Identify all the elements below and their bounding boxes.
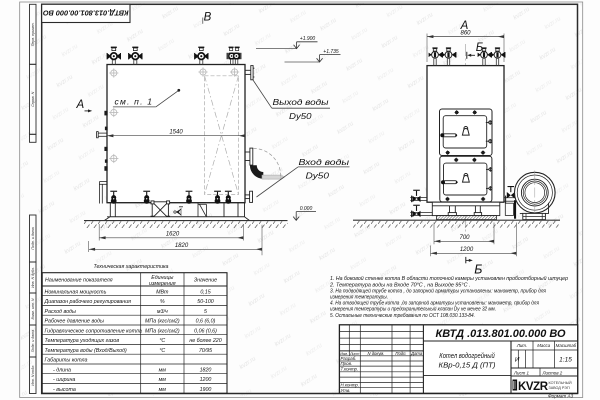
svg-text:Расход воды: Расход воды [45, 309, 76, 315]
svg-text:м3/ч: м3/ч [157, 309, 168, 315]
svg-text:Температура уходящих газов: Температура уходящих газов [45, 338, 120, 344]
svg-text:измерения: измерения [149, 281, 176, 287]
svg-text:МПа (кгс/см2): МПа (кгс/см2) [145, 319, 180, 325]
svg-text:+1.900: +1.900 [300, 36, 316, 42]
svg-text:N докум.: N докум. [368, 351, 385, 356]
svg-text:%: % [160, 299, 165, 305]
svg-text:Техническая характеристика: Техническая характеристика [94, 264, 170, 270]
svg-text:Инв. N дубл.: Инв. N дубл. [31, 267, 35, 288]
svg-text:измерения температуры.: измерения температуры. [330, 295, 388, 301]
svg-text:KVZR: KVZR [518, 381, 549, 393]
svg-text:- высота: - высота [53, 387, 76, 393]
svg-text:Лит.: Лит. [516, 343, 527, 348]
svg-text:0,15: 0,15 [200, 289, 210, 295]
svg-text:измерения температуры и пре: измерения температуры и предохранительны… [330, 306, 496, 313]
svg-text:КОТЕЛЬНЫЙ: КОТЕЛЬНЫЙ [549, 381, 572, 385]
svg-text:Подп. и дата: Подп. и дата [31, 227, 35, 250]
svg-text:1200: 1200 [460, 247, 474, 253]
svg-text:3. На подводящей трубе кот: 3. На подводящей трубе котла , до запорн… [330, 288, 546, 295]
svg-text:не более 220: не более 220 [189, 338, 221, 344]
svg-text:Дата: Дата [410, 351, 423, 356]
svg-text:мм: мм [159, 377, 167, 383]
svg-text:Температура воды (Вход/Выход): Температура воды (Вход/Выход) [45, 348, 127, 354]
svg-text:1820: 1820 [200, 367, 212, 373]
svg-text:Подп.: Подп. [395, 351, 406, 356]
svg-text:1200: 1200 [200, 377, 212, 383]
svg-text:мм: мм [159, 387, 167, 393]
svg-text:50-100: 50-100 [197, 299, 214, 305]
svg-text:В: В [204, 12, 212, 24]
svg-text:0,6 (6,0): 0,6 (6,0) [196, 319, 216, 325]
svg-text:1. На боковой стенке котла: 1. На боковой стенке котла В области топ… [330, 275, 568, 282]
svg-text:КВр-0,15 Д (ПТ): КВр-0,15 Д (ПТ) [439, 362, 496, 369]
svg-text:Инв. N подл.: Инв. N подл. [31, 365, 35, 386]
svg-text:МВт: МВт [156, 289, 169, 295]
svg-text:Гидравлическое сопротивление к: Гидравлическое сопротивление котла [45, 328, 142, 334]
svg-text:Котел водогрейный: Котел водогрейный [439, 352, 495, 360]
svg-text:Выход воды: Выход воды [273, 97, 330, 107]
svg-text:Утв.: Утв. [341, 388, 351, 393]
svg-text:Взам. инв. N: Взам. инв. N [31, 298, 35, 319]
svg-text:Габариты котла: Габариты котла [45, 358, 88, 364]
svg-text:Наименование показателя: Наименование показателя [45, 278, 113, 284]
svg-text:1540: 1540 [169, 129, 183, 135]
svg-text:см. п. 1: см. п. 1 [115, 96, 153, 106]
svg-text:70/95: 70/95 [199, 348, 212, 354]
svg-text:Т.контр.: Т.контр. [341, 367, 359, 372]
svg-text:Диапазон рабочего регулировани: Диапазон рабочего регулирования [44, 299, 132, 305]
svg-text:Б: Б [474, 263, 482, 277]
svg-text:2. Температура воды на Вхо: 2. Температура воды на Входе 70°С , на В… [329, 282, 471, 288]
svg-text:- длина: - длина [53, 367, 71, 373]
svg-text:ЗАВОД РЭП: ЗАВОД РЭП [549, 386, 570, 390]
svg-text:Формат А3: Формат А3 [548, 394, 574, 399]
svg-text:1900: 1900 [200, 387, 212, 393]
svg-text:Значение: Значение [194, 278, 217, 284]
svg-text:5: 5 [204, 309, 207, 315]
svg-text:Масштаб: Масштаб [556, 343, 577, 348]
svg-text:0,06 (0,6): 0,06 (0,6) [194, 328, 217, 334]
svg-text:МПа (кгс/см2): МПа (кгс/см2) [145, 328, 180, 334]
svg-text:И: И [515, 357, 520, 364]
svg-text:Перв. примен.: Перв. примен. [31, 22, 35, 46]
svg-text:мм: мм [159, 367, 167, 373]
svg-text:А: А [75, 99, 84, 111]
svg-text:°С: °С [159, 348, 165, 354]
svg-text:4. На отводящей трубе котл: 4. На отводящей трубе котла ,до запорной… [330, 300, 539, 307]
svg-text:+1.735: +1.735 [323, 49, 339, 55]
svg-text:Номинальная мощность: Номинальная мощность [45, 289, 107, 295]
svg-text:1620: 1620 [166, 232, 180, 238]
svg-text:860: 860 [460, 30, 471, 36]
svg-text:Справ. N: Справ. N [31, 91, 35, 106]
svg-text:°С: °С [159, 338, 165, 344]
svg-text:Рабочее давление воды: Рабочее давление воды [45, 319, 104, 325]
svg-text:5. Остальные технические тр: 5. Остальные технические требования по О… [330, 313, 475, 319]
svg-text:Пров.: Пров. [341, 361, 353, 366]
svg-text:- ширина: - ширина [53, 377, 75, 383]
svg-text:КВТД .013.801.00.000 ВО: КВТД .013.801.00.000 ВО [436, 328, 566, 340]
svg-text:1:15: 1:15 [559, 357, 572, 364]
svg-text:Dy50: Dy50 [306, 171, 330, 181]
svg-text:Подп. и дата: Подп. и дата [31, 330, 35, 353]
svg-text:700: 700 [459, 235, 470, 241]
svg-text:1820: 1820 [175, 243, 189, 249]
svg-text:Масса: Масса [537, 343, 551, 348]
svg-text:0.000: 0.000 [300, 206, 313, 212]
svg-text:КВТД.013.801.00.000 ВО: КВТД.013.801.00.000 ВО [43, 9, 129, 18]
svg-text:Лист 1: Лист 1 [513, 371, 530, 376]
svg-text:Вход воды: Вход воды [299, 157, 350, 167]
svg-text:Н.контр.: Н.контр. [341, 383, 360, 388]
svg-text:Листов 2: Листов 2 [542, 371, 563, 376]
svg-text:Dy50: Dy50 [289, 111, 312, 121]
